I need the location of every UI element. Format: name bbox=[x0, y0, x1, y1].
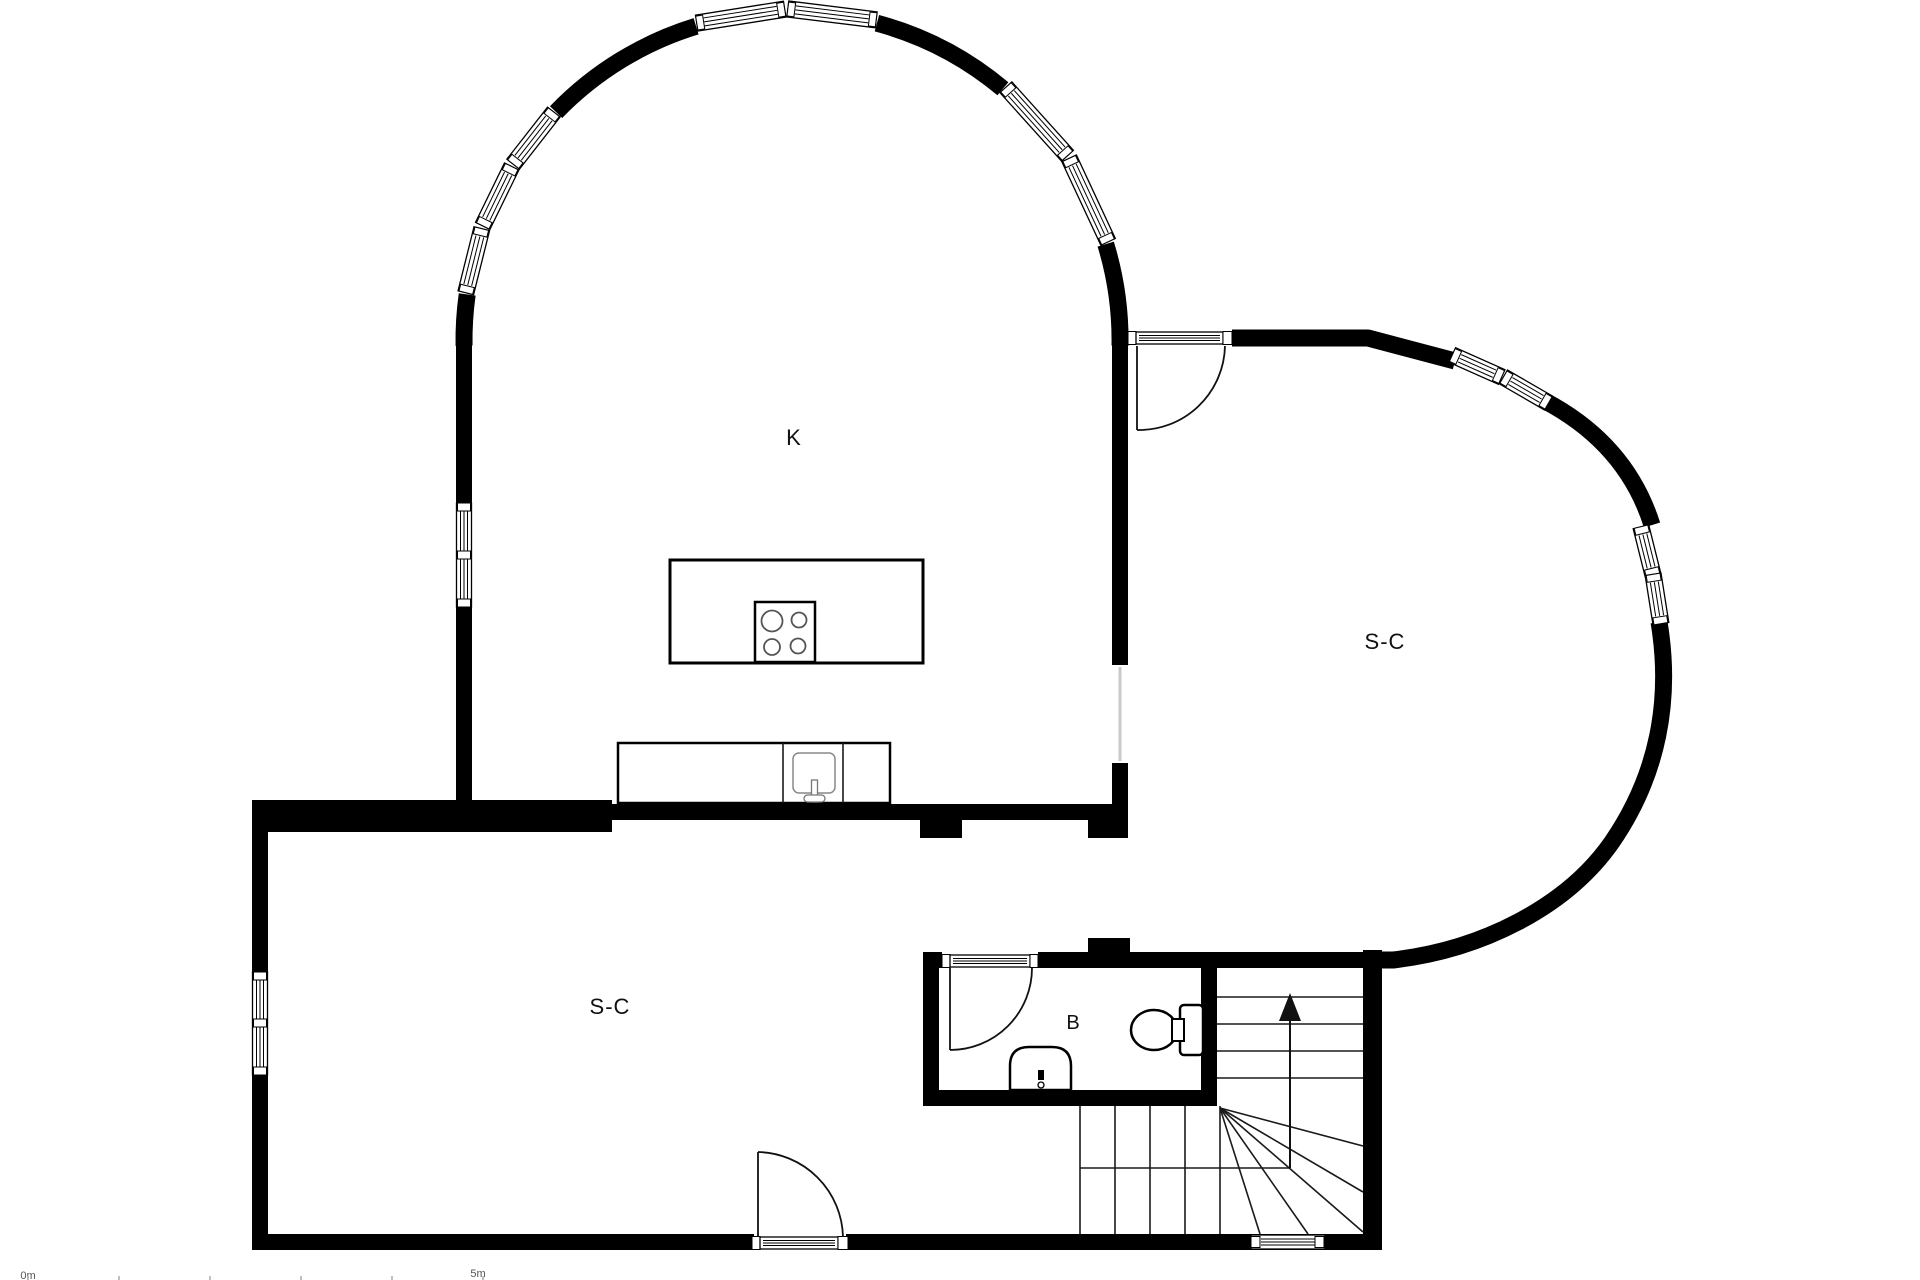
bathroom-sink-icon bbox=[1010, 1047, 1071, 1090]
suite-lower-left-wall bbox=[252, 800, 268, 972]
faucet-dot bbox=[1038, 1082, 1044, 1088]
stove-icon bbox=[755, 602, 815, 662]
kitchen-right-wall bbox=[1112, 328, 1128, 665]
kitchen-bottom-wall bbox=[612, 804, 1128, 820]
door-swing bbox=[950, 968, 1032, 1050]
suite-lower-bottom-wall bbox=[846, 1234, 1255, 1250]
arch-window bbox=[695, 1, 785, 31]
floor-plan: K bbox=[0, 0, 1920, 1280]
kitchen-bottom-wall-stub bbox=[920, 818, 962, 838]
faucet-icon bbox=[1038, 1070, 1044, 1080]
suite-right-top-wall bbox=[1232, 338, 1455, 361]
suite-right-door bbox=[1128, 332, 1232, 431]
door-swing bbox=[758, 1152, 843, 1237]
room-label-suite-lower: S-C bbox=[590, 994, 631, 1019]
kitchen-bottom-wall-stub bbox=[1088, 818, 1128, 838]
scale-ticks bbox=[28, 1276, 483, 1280]
suite-lower-door bbox=[752, 1152, 848, 1250]
arch-window bbox=[787, 1, 877, 28]
stair-direction-arrow bbox=[1279, 993, 1301, 1168]
suite-lower-left-window bbox=[253, 972, 268, 1075]
toilet-icon bbox=[1131, 1005, 1203, 1055]
kitchen-arch-wall bbox=[464, 23, 1120, 346]
wall-bump bbox=[1088, 938, 1130, 954]
curve-window bbox=[1645, 573, 1669, 625]
arch-window bbox=[1000, 82, 1073, 161]
door-swing bbox=[1137, 346, 1225, 430]
suite-right-curved-wall bbox=[1371, 622, 1664, 960]
stair-window bbox=[1251, 1235, 1325, 1249]
room-label-suite-right: S-C bbox=[1365, 629, 1406, 654]
room-label-kitchen: K bbox=[786, 425, 802, 450]
kitchen-left-window bbox=[457, 503, 472, 607]
bathroom-bottom-wall bbox=[923, 1090, 1217, 1106]
arch-window bbox=[1062, 155, 1115, 245]
scale-bar: 0m 5m bbox=[20, 1268, 485, 1280]
kitchen-island bbox=[670, 560, 923, 663]
suite-lower-top-wall bbox=[252, 800, 612, 832]
room-label-bathroom: B bbox=[1066, 1012, 1079, 1034]
bathroom-left-wall bbox=[923, 952, 939, 1106]
kitchen-left-wall-lower bbox=[456, 607, 472, 832]
arch-window bbox=[476, 163, 519, 229]
suite-lower-bottom-wall bbox=[252, 1234, 754, 1250]
floor-plan-svg: K bbox=[0, 0, 1920, 1280]
curve-window bbox=[1449, 348, 1505, 385]
suite-lower-left-wall bbox=[252, 1075, 268, 1250]
bathroom-door bbox=[942, 955, 1038, 1051]
arch-window bbox=[458, 227, 489, 295]
kitchen-left-wall bbox=[456, 328, 472, 503]
suite-lower-room: S-C bbox=[252, 800, 1255, 1250]
stair-fan bbox=[1220, 1108, 1363, 1234]
bathroom: B bbox=[923, 938, 1382, 1106]
kitchen-room: K bbox=[252, 1, 1128, 838]
arch-window bbox=[507, 107, 560, 169]
suite-right-room: S-C bbox=[1128, 332, 1669, 961]
curve-window bbox=[1633, 525, 1661, 577]
stair-right-wall bbox=[1363, 950, 1382, 1250]
curve-window bbox=[1499, 370, 1552, 410]
kitchen-counter bbox=[618, 743, 890, 803]
stair-treads bbox=[1080, 997, 1363, 1234]
faucet-handle bbox=[804, 795, 825, 802]
suite-right-curved-wall bbox=[1545, 401, 1652, 525]
